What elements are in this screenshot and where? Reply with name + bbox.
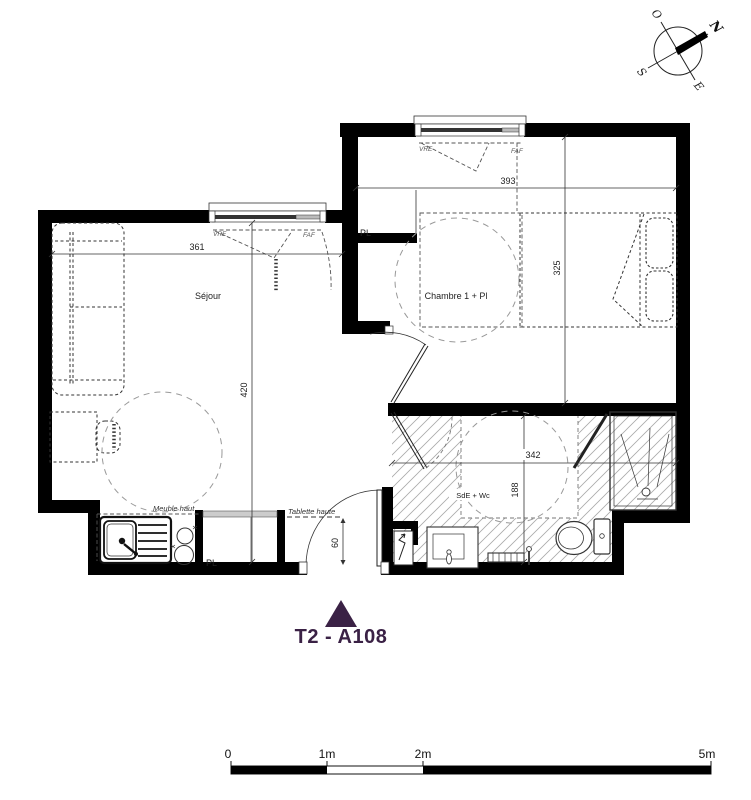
label-faf-chambre: FAF bbox=[511, 148, 524, 155]
door-arc bbox=[370, 332, 426, 345]
scale-bar: 0 1m 2m 5m bbox=[225, 747, 716, 774]
door-leaf2 bbox=[394, 346, 428, 403]
label-vre-chambre: VRE bbox=[419, 146, 433, 153]
label-faf-sejour: FAF bbox=[303, 232, 316, 239]
faucet-handle-tip bbox=[134, 552, 138, 556]
pillow-1 bbox=[646, 218, 673, 268]
window-glazing-faf bbox=[296, 215, 323, 219]
toilet-tank bbox=[594, 519, 610, 554]
table bbox=[50, 412, 97, 462]
sink-tap bbox=[447, 550, 451, 554]
turning-circle-sejour bbox=[102, 392, 222, 512]
dim-60 bbox=[341, 518, 346, 565]
wall-closet-bottom-right bbox=[277, 510, 285, 575]
door-jamb-right bbox=[381, 562, 389, 574]
label-pl-top: PL bbox=[360, 228, 371, 238]
window-jamb-right bbox=[519, 124, 525, 136]
toilet bbox=[556, 519, 610, 555]
title-block: T2 - A108 bbox=[295, 600, 388, 648]
wall-top-sejour-left bbox=[38, 210, 210, 223]
dim-arrow-bottom bbox=[341, 560, 346, 565]
sofa-outline bbox=[52, 223, 124, 395]
window-open-arc bbox=[322, 232, 331, 290]
closet-sliding-door bbox=[203, 511, 277, 517]
compass: O N S E bbox=[634, 7, 726, 94]
window-glazing-vre bbox=[214, 215, 296, 219]
dim-393: 393 bbox=[500, 176, 515, 186]
scale-segment-2-5 bbox=[423, 766, 711, 774]
compass-north: N bbox=[705, 17, 725, 37]
room-label-sejour: Séjour bbox=[195, 291, 221, 301]
room-label-chambre: Chambre 1 + Pl bbox=[425, 291, 488, 301]
compass-needle bbox=[675, 31, 708, 55]
door-jamb-left bbox=[299, 562, 307, 574]
dim-342: 342 bbox=[525, 450, 540, 460]
scale-2m: 2m bbox=[415, 747, 432, 761]
door-leaf bbox=[377, 490, 382, 566]
wall-right bbox=[676, 123, 690, 523]
window-chambre bbox=[414, 116, 526, 211]
window-jamb-left bbox=[415, 124, 421, 136]
toilet-bowl bbox=[556, 522, 592, 555]
compass-east: E bbox=[690, 78, 706, 93]
compass-west: O bbox=[649, 7, 665, 22]
dim-420: 420 bbox=[239, 382, 249, 397]
bedroom-door bbox=[370, 332, 428, 403]
compass-south: S bbox=[634, 65, 649, 79]
title-triangle bbox=[325, 600, 357, 627]
floor-plan-canvas: Séjour Chambre 1 + Pl SdE + Wc 361 420 3… bbox=[0, 0, 751, 800]
label-vre-sejour: VRE bbox=[213, 231, 227, 238]
kitchen bbox=[97, 514, 199, 565]
bathroom-sink bbox=[427, 527, 478, 568]
window-ledge bbox=[209, 203, 326, 211]
faucet bbox=[119, 538, 125, 544]
wall-closet-bottom-left bbox=[195, 510, 203, 575]
closet-bottom bbox=[203, 511, 277, 562]
scale-segment-0-1 bbox=[231, 766, 327, 774]
label-pl-bottom: PL bbox=[206, 558, 217, 568]
window-ledge bbox=[414, 116, 526, 124]
sink-counter bbox=[427, 527, 478, 568]
side-table-chair bbox=[50, 412, 120, 462]
pillow-2 bbox=[646, 271, 673, 321]
dim-60-label: 60 bbox=[330, 538, 340, 548]
window-sejour bbox=[209, 203, 331, 291]
room-label-sde: SdE + Wc bbox=[456, 491, 490, 500]
scale-1m: 1m bbox=[319, 747, 336, 761]
dim-325: 325 bbox=[552, 260, 562, 275]
radiator-valve-knob bbox=[527, 547, 532, 552]
bed-outline bbox=[520, 213, 677, 327]
duct-shaft bbox=[394, 531, 413, 565]
page-title: T2 - A108 bbox=[295, 626, 388, 648]
burner-1 bbox=[177, 528, 193, 544]
radiator-body bbox=[488, 553, 524, 562]
label-meuble-haut: Meuble haut bbox=[153, 504, 195, 513]
wall-bottom-bathroom bbox=[388, 562, 624, 575]
chair bbox=[96, 421, 120, 453]
bed bbox=[520, 213, 677, 327]
wall-sejour-chambre-divider bbox=[342, 123, 358, 333]
scale-0: 0 bbox=[225, 747, 232, 761]
blanket-fold bbox=[613, 214, 644, 326]
sink-tap-body bbox=[447, 554, 452, 564]
scale-5m: 5m bbox=[699, 747, 716, 761]
dim-arrow-top bbox=[341, 518, 346, 523]
window-glazing-vre bbox=[419, 128, 502, 132]
wall-left bbox=[38, 210, 52, 513]
wall-bathroom-top bbox=[388, 403, 676, 416]
wall-top-bedroom-right bbox=[524, 123, 690, 137]
door-leaf bbox=[391, 344, 425, 402]
sofa bbox=[52, 223, 124, 395]
burner-2 bbox=[175, 546, 194, 565]
closet-zone-chambre bbox=[420, 213, 522, 327]
label-tablette-haute: Tablette haute bbox=[288, 507, 335, 516]
floor-plan-page: Séjour Chambre 1 + Pl SdE + Wc 361 420 3… bbox=[0, 0, 751, 800]
dim-188: 188 bbox=[510, 482, 520, 497]
window-jamb-right bbox=[320, 211, 326, 222]
window-jamb-left bbox=[209, 211, 215, 222]
dim-361: 361 bbox=[189, 242, 204, 252]
bathroom-clear-zone bbox=[461, 412, 578, 518]
shower-drain bbox=[642, 488, 650, 496]
